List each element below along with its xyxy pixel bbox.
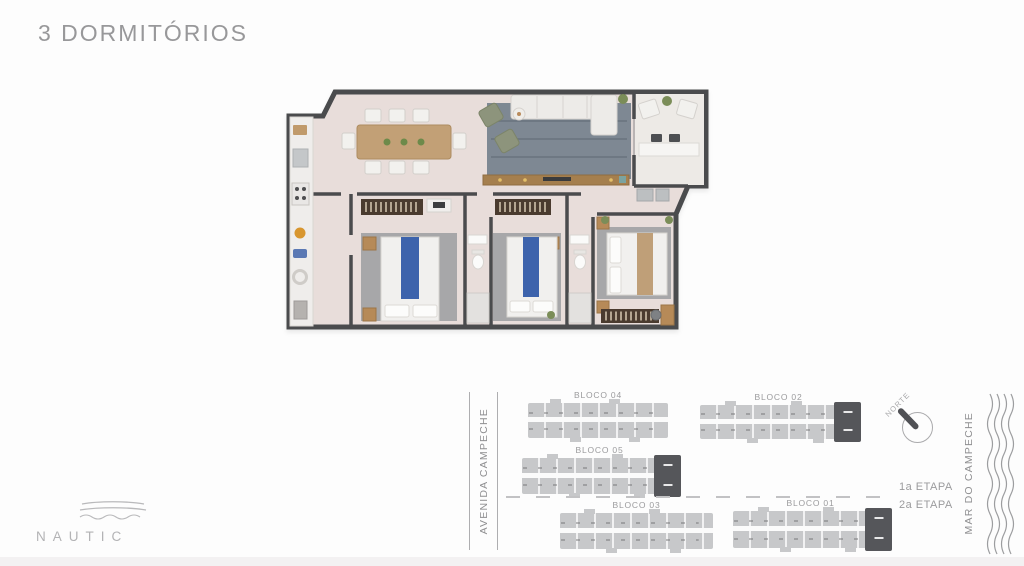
block-02: BLOCO 02: [700, 392, 857, 439]
block-05-building: [522, 458, 677, 494]
sea: MAR DO CAMPECHE: [958, 392, 980, 555]
sea-waves-icon: [984, 392, 1018, 558]
avenue-road: AVENIDA CAMPECHE: [469, 392, 498, 550]
block-01-label: BLOCO 01: [733, 498, 888, 508]
block-02-highlighted-unit: [834, 402, 861, 442]
block-01: BLOCO 01: [733, 498, 888, 548]
nautic-logo: NAUTIC: [36, 498, 166, 544]
block-03-label: BLOCO 03: [560, 500, 713, 510]
block-04: BLOCO 04: [528, 390, 668, 438]
block-02-label: BLOCO 02: [700, 392, 857, 402]
block-05: BLOCO 05: [522, 445, 677, 494]
block-01-highlighted-unit: [865, 508, 892, 551]
page: 3 DORMITÓRIOS: [0, 0, 1024, 566]
logo-text: NAUTIC: [36, 529, 166, 544]
bottom-band: [0, 557, 1024, 566]
avenue-label: AVENIDA CAMPECHE: [478, 408, 490, 534]
logo-waves-icon: [36, 498, 156, 522]
block-04-building: [528, 403, 668, 438]
block-04-label: BLOCO 04: [528, 390, 668, 400]
block-03-building: [560, 513, 713, 549]
block-03: BLOCO 03: [560, 500, 713, 549]
sea-label: MAR DO CAMPECHE: [963, 412, 975, 534]
block-05-highlighted-unit: [654, 455, 681, 497]
block-01-building: [733, 511, 888, 548]
stage-2-label: 2a ETAPA: [899, 499, 953, 511]
north-arrow: NORTE: [880, 388, 942, 450]
block-02-building: [700, 405, 857, 439]
stage-1-label: 1a ETAPA: [899, 481, 953, 493]
block-05-label: BLOCO 05: [522, 445, 677, 455]
site-plan: AVENIDA CAMPECHE BLOCO 04 BLOCO 02 BLOCO…: [0, 0, 1024, 566]
